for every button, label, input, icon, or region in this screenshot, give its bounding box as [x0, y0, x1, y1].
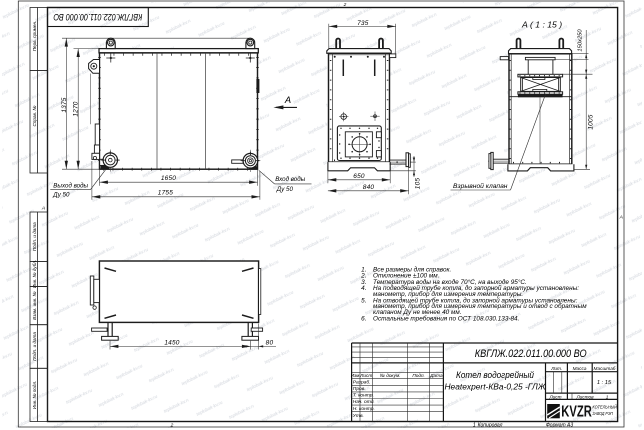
svg-text:Дата: Дата — [429, 373, 443, 378]
svg-text:Подп. и дата: Подп. и дата — [32, 222, 37, 251]
svg-text:Лист: Лист — [548, 394, 561, 399]
svg-text:Heatexpert-КВа-0,25 -ГЛЖ: Heatexpert-КВа-0,25 -ГЛЖ — [445, 381, 547, 391]
svg-text:650: 650 — [353, 173, 365, 180]
svg-text:Ду 50: Ду 50 — [276, 186, 294, 193]
svg-text:А: А — [41, 206, 45, 212]
svg-text:1375: 1375 — [61, 97, 68, 112]
svg-text:А: А — [284, 95, 291, 105]
svg-text:КВГЛЖ.022.011.00.000 ВО: КВГЛЖ.022.011.00.000 ВО — [475, 348, 587, 360]
svg-text:Остальные требования по ОСТ 10: Остальные требования по ОСТ 108.030.133-… — [373, 314, 519, 322]
svg-text:2: 2 — [343, 2, 347, 8]
svg-text:105: 105 — [415, 178, 422, 190]
svg-text:Масштаб: Масштаб — [594, 366, 616, 371]
svg-text:Инв. № подл.: Инв. № подл. — [32, 381, 37, 410]
svg-text:№ докум.: № докум. — [380, 373, 401, 378]
svg-text:KVZR: KVZR — [561, 404, 592, 421]
svg-text:Лит.: Лит. — [550, 366, 562, 371]
svg-text:Н. контр.: Н. контр. — [353, 406, 375, 412]
svg-text:Инв. № дубл.: Инв. № дубл. — [32, 260, 37, 288]
svg-text:Разраб.: Разраб. — [353, 379, 371, 385]
svg-text:Ду 50: Ду 50 — [52, 192, 70, 199]
svg-text:Лист: Лист — [359, 373, 372, 378]
svg-text:Масса: Масса — [573, 366, 587, 371]
svg-text:5.: 5. — [361, 297, 366, 304]
svg-text:Пров.: Пров. — [353, 386, 366, 392]
svg-text:Т. контр.: Т. контр. — [353, 393, 374, 399]
svg-text:Котел водогрейный: Котел водогрейный — [456, 370, 534, 380]
svg-text:150х250: 150х250 — [578, 29, 584, 52]
svg-text:Подп. и дата: Подп. и дата — [32, 332, 37, 361]
svg-text:4.: 4. — [361, 285, 366, 292]
svg-text:6.: 6. — [361, 315, 366, 322]
svg-text:80: 80 — [266, 339, 274, 346]
svg-text:Перв. примен.: Перв. примен. — [32, 21, 37, 52]
svg-text:1755: 1755 — [158, 190, 173, 197]
svg-text:ЗАВОД РЭП: ЗАВОД РЭП — [592, 411, 613, 416]
svg-text:1: 1 — [473, 423, 476, 429]
svg-text:1 : 15: 1 : 15 — [597, 380, 612, 386]
svg-text:Справ. №: Справ. № — [32, 106, 37, 127]
svg-text:Взам. инв. №: Взам. инв. № — [32, 291, 37, 319]
svg-text:1650: 1650 — [161, 175, 176, 182]
svg-text:Копировал: Копировал — [478, 423, 503, 429]
svg-text:Формат А3: Формат А3 — [546, 423, 574, 429]
svg-text:А ( 1 : 15 ): А ( 1 : 15 ) — [521, 19, 562, 29]
svg-text:КОТЕЛЬНЫЙ: КОТЕЛЬНЫЙ — [592, 403, 617, 410]
svg-text:Выход воды: Выход воды — [53, 182, 88, 189]
svg-text:Утв.: Утв. — [353, 413, 364, 419]
svg-text:735: 735 — [357, 20, 369, 27]
svg-text:2: 2 — [170, 423, 174, 429]
svg-text:Листов: Листов — [575, 394, 594, 399]
svg-text:Вход воды: Вход воды — [275, 176, 305, 183]
svg-text:Нач. отд.: Нач. отд. — [353, 399, 375, 405]
svg-text:1: 1 — [606, 394, 609, 399]
svg-text:Взрывной клапан: Взрывной клапан — [453, 182, 508, 190]
svg-text:1005: 1005 — [587, 114, 594, 129]
svg-text:Подп.: Подп. — [412, 373, 424, 378]
svg-text:1270: 1270 — [73, 101, 80, 116]
svg-text:1450: 1450 — [164, 339, 179, 346]
svg-text:А: А — [619, 215, 623, 221]
svg-text:840: 840 — [363, 184, 375, 191]
svg-text:КВГЛЖ.022.011.00.000 ВО: КВГЛЖ.022.011.00.000 ВО — [53, 12, 142, 22]
